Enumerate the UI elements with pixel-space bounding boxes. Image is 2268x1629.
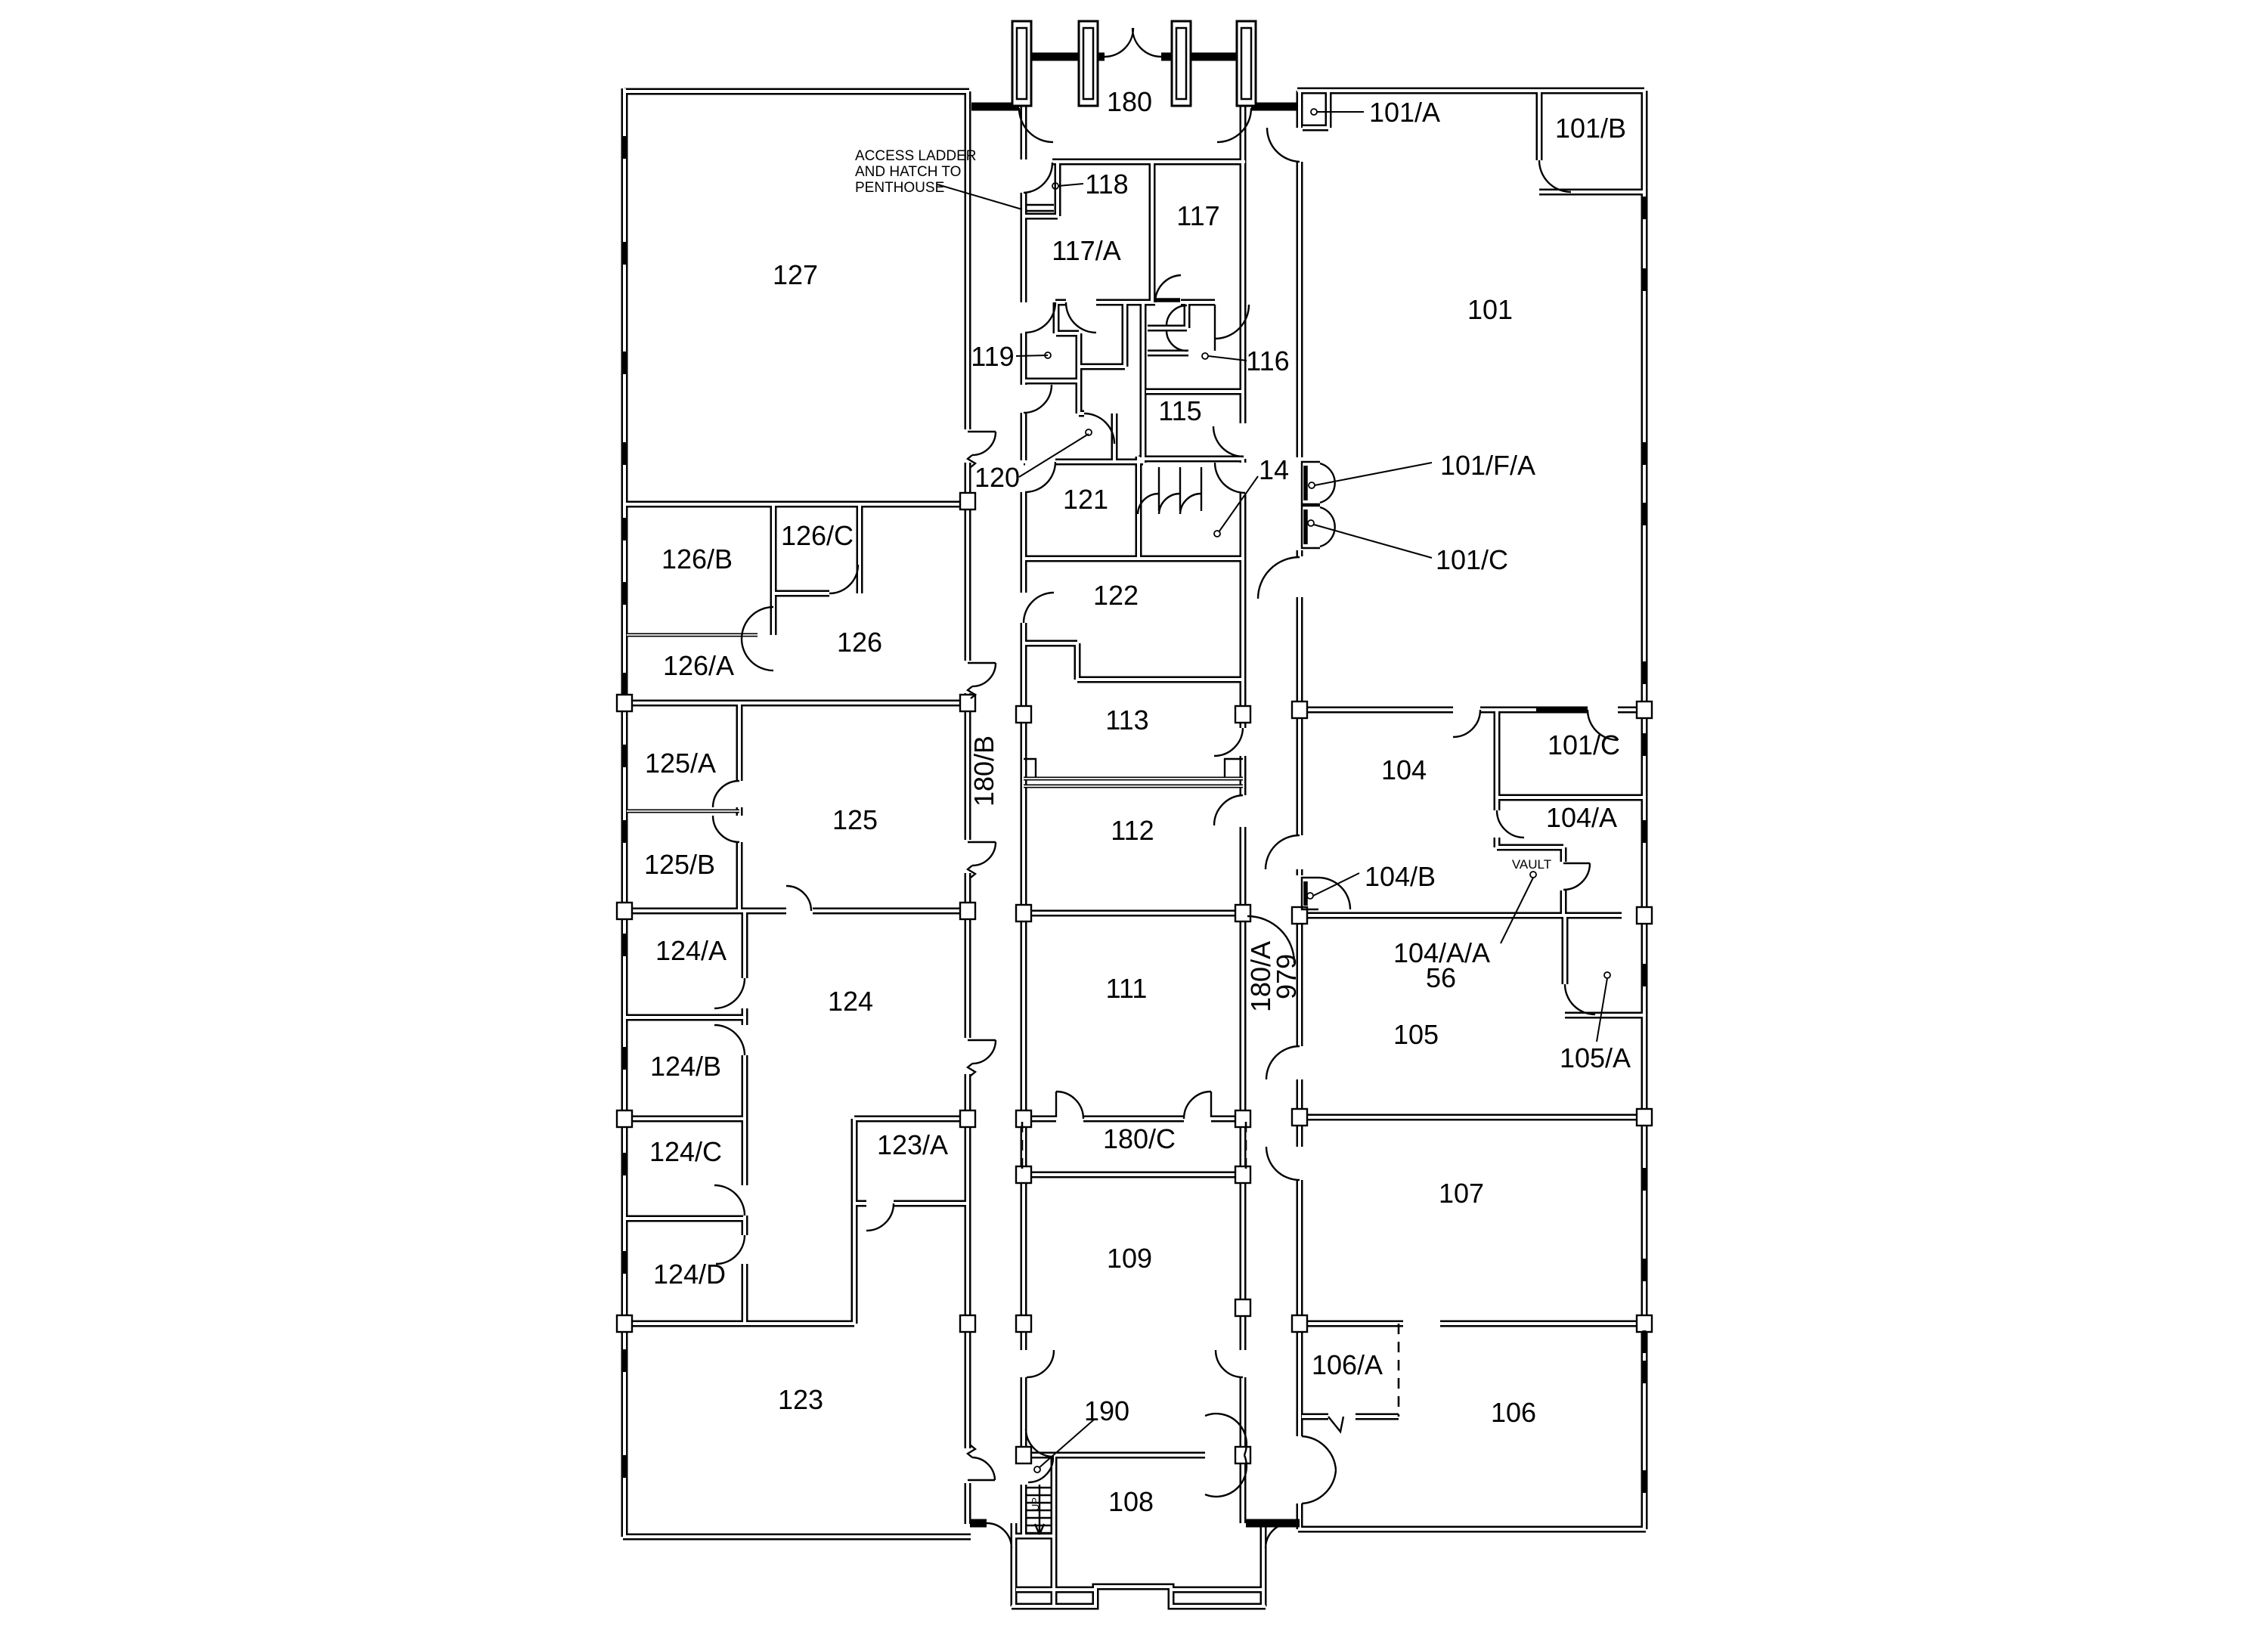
svg-text:105: 105 — [1393, 1019, 1439, 1050]
svg-text:180/B: 180/B — [968, 736, 999, 807]
svg-text:123: 123 — [778, 1384, 823, 1415]
svg-text:14: 14 — [1259, 454, 1289, 485]
svg-text:124/D: 124/D — [653, 1259, 726, 1290]
svg-text:108: 108 — [1108, 1486, 1154, 1517]
svg-text:126/A: 126/A — [663, 650, 734, 681]
svg-text:56: 56 — [1426, 962, 1456, 993]
svg-text:119: 119 — [971, 341, 1014, 372]
svg-text:101/C: 101/C — [1436, 544, 1508, 575]
svg-text:UP: UP — [1030, 1497, 1041, 1511]
svg-text:126/C: 126/C — [781, 520, 854, 551]
svg-text:117: 117 — [1176, 200, 1219, 231]
svg-text:120: 120 — [974, 462, 1020, 493]
svg-text:101/A: 101/A — [1369, 97, 1440, 128]
svg-text:123/A: 123/A — [877, 1129, 948, 1160]
svg-text:106/A: 106/A — [1312, 1349, 1383, 1380]
svg-text:101/F/A: 101/F/A — [1440, 450, 1535, 481]
svg-text:109: 109 — [1107, 1243, 1152, 1274]
svg-text:118: 118 — [1085, 169, 1128, 200]
svg-text:107: 107 — [1439, 1178, 1484, 1209]
svg-text:111: 111 — [1106, 973, 1148, 1004]
svg-text:979: 979 — [1271, 954, 1302, 999]
svg-text:101: 101 — [1467, 294, 1513, 325]
svg-text:116: 116 — [1246, 345, 1289, 376]
svg-text:190: 190 — [1084, 1395, 1129, 1426]
svg-text:PENTHOUSE: PENTHOUSE — [855, 180, 944, 196]
svg-text:124: 124 — [828, 986, 873, 1017]
svg-text:121: 121 — [1063, 484, 1108, 515]
svg-text:104: 104 — [1381, 754, 1427, 785]
svg-text:113: 113 — [1105, 705, 1148, 736]
svg-text:125/A: 125/A — [645, 748, 716, 779]
svg-text:124/B: 124/B — [650, 1051, 721, 1082]
svg-text:124/C: 124/C — [649, 1136, 722, 1167]
svg-text:125: 125 — [832, 804, 878, 835]
svg-text:126: 126 — [837, 627, 882, 658]
svg-text:122: 122 — [1093, 580, 1139, 611]
svg-text:112: 112 — [1111, 815, 1154, 846]
svg-text:104/A: 104/A — [1546, 802, 1617, 833]
svg-text:125/B: 125/B — [644, 849, 715, 880]
svg-text:180: 180 — [1107, 86, 1152, 117]
svg-text:ACCESS LADDER: ACCESS LADDER — [855, 148, 977, 164]
svg-text:115: 115 — [1158, 395, 1201, 426]
svg-text:104/B: 104/B — [1365, 861, 1436, 892]
svg-text:117/A: 117/A — [1052, 235, 1120, 266]
svg-text:VAULT: VAULT — [1512, 857, 1551, 872]
svg-text:101/C: 101/C — [1548, 729, 1620, 760]
svg-text:101/B: 101/B — [1555, 113, 1626, 144]
svg-text:105/A: 105/A — [1560, 1042, 1631, 1073]
svg-text:126/B: 126/B — [661, 544, 733, 574]
svg-text:127: 127 — [773, 259, 818, 290]
svg-text:180/C: 180/C — [1103, 1123, 1176, 1154]
svg-text:124/A: 124/A — [655, 935, 727, 966]
svg-text:106: 106 — [1491, 1397, 1536, 1428]
svg-text:AND HATCH TO: AND HATCH TO — [855, 164, 961, 180]
